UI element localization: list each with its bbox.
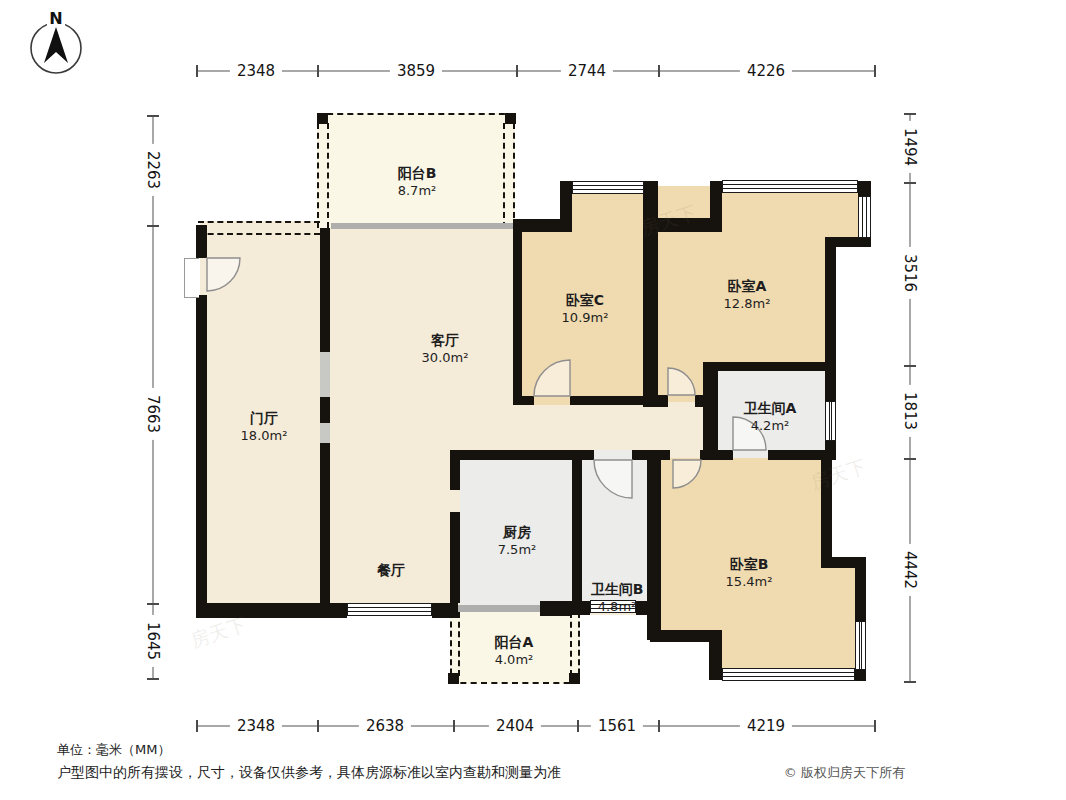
dim-value: 1645 bbox=[144, 615, 162, 667]
dim-tick bbox=[147, 678, 159, 680]
room-area: 18.0m² bbox=[241, 427, 288, 444]
bedroom-b-fill-left bbox=[655, 558, 722, 630]
wall bbox=[855, 568, 866, 622]
wall bbox=[709, 630, 722, 680]
dim-value: 2348 bbox=[230, 717, 282, 735]
room-area: 30.0m² bbox=[422, 349, 469, 366]
dimension-line-left: 2263 7663 1645 bbox=[152, 115, 154, 680]
wall bbox=[513, 396, 534, 405]
wall bbox=[320, 397, 330, 423]
dim-value: 1561 bbox=[591, 717, 643, 735]
wall bbox=[196, 225, 207, 258]
room-label-balcony-b: 阳台B 8.7m² bbox=[398, 165, 437, 199]
room-area: 4.2m² bbox=[751, 417, 790, 434]
room-name: 卧室B bbox=[730, 556, 769, 573]
room-name: 卫生间B bbox=[591, 581, 644, 598]
dim-value: 2404 bbox=[489, 717, 541, 735]
wall bbox=[703, 362, 718, 458]
window-bedroom-b-right bbox=[855, 621, 866, 670]
dim-tick bbox=[196, 720, 198, 732]
room-area: 4.8m² bbox=[598, 598, 637, 615]
wall bbox=[450, 458, 460, 490]
room-name: 卧室C bbox=[566, 292, 604, 309]
room-name: 阳台A bbox=[495, 634, 534, 651]
dim-value: 2638 bbox=[359, 717, 411, 735]
wall bbox=[196, 295, 207, 618]
dim-tick bbox=[516, 65, 518, 77]
wall bbox=[572, 458, 582, 603]
dim-value: 2263 bbox=[144, 144, 162, 196]
wall bbox=[700, 450, 733, 460]
dim-tick bbox=[904, 182, 916, 184]
room-label-bedroom-c: 卧室C 10.9m² bbox=[562, 292, 609, 326]
room-label-bathroom-b: 卫生间B 4.8m² bbox=[591, 581, 644, 615]
bedroom-b-fill-top bbox=[655, 458, 832, 558]
wall bbox=[858, 181, 871, 196]
dim-value: 2348 bbox=[230, 62, 282, 80]
wall bbox=[540, 601, 572, 616]
window-bedroom-c-top bbox=[572, 181, 644, 194]
window-bedroom-b-bottom bbox=[722, 668, 855, 681]
room-label-balcony-a: 阳台A 4.0m² bbox=[495, 634, 534, 668]
dim-value: 4226 bbox=[740, 62, 792, 80]
window-bedroom-a-bay bbox=[858, 196, 871, 238]
wall bbox=[450, 512, 460, 603]
dim-tick bbox=[904, 113, 916, 115]
wall bbox=[695, 395, 715, 407]
wall bbox=[645, 395, 668, 407]
dim-tick bbox=[874, 65, 876, 77]
room-area: 10.9m² bbox=[562, 309, 609, 326]
wall bbox=[505, 113, 516, 124]
wall bbox=[450, 450, 582, 460]
wall-opening-foyer-living-1 bbox=[320, 352, 330, 397]
floor-plan-page: { "compass": { "label": "N" }, "rooms": … bbox=[0, 0, 1066, 800]
room-area: 15.4m² bbox=[726, 573, 773, 590]
dim-tick bbox=[453, 720, 455, 732]
foyer-top-dashed-wall bbox=[198, 221, 320, 235]
sliding-door-kitchen-balcony-a bbox=[458, 605, 540, 612]
wall bbox=[560, 181, 572, 232]
dim-tick bbox=[904, 365, 916, 367]
window-dining-bottom bbox=[347, 603, 432, 616]
room-area: 8.7m² bbox=[398, 182, 437, 199]
dim-value: 4442 bbox=[901, 544, 919, 596]
room-area: 7.5m² bbox=[498, 541, 537, 558]
dim-value: 4219 bbox=[740, 717, 792, 735]
wall bbox=[643, 181, 658, 407]
dim-tick bbox=[147, 603, 159, 605]
room-label-foyer: 门厅 18.0m² bbox=[241, 410, 288, 444]
dim-tick bbox=[317, 65, 319, 77]
dim-tick bbox=[196, 65, 198, 77]
dim-value: 2744 bbox=[561, 62, 613, 80]
wall bbox=[569, 673, 580, 684]
wall bbox=[320, 443, 330, 603]
wall bbox=[821, 557, 866, 568]
wall bbox=[825, 247, 836, 402]
room-name: 门厅 bbox=[250, 410, 278, 427]
wall bbox=[570, 396, 645, 405]
room-area: 4.0m² bbox=[495, 651, 534, 668]
unit-note: 单位：毫米（MM） bbox=[57, 741, 170, 759]
entry-door-nook bbox=[184, 258, 199, 298]
wall bbox=[821, 458, 832, 557]
room-label-kitchen: 厨房 7.5m² bbox=[498, 524, 537, 558]
room-name: 厨房 bbox=[503, 524, 531, 541]
wall bbox=[432, 603, 458, 618]
wall bbox=[196, 603, 347, 618]
dim-tick bbox=[317, 720, 319, 732]
copyright: © 版权归房天下所有 bbox=[784, 764, 905, 782]
dim-value: 1813 bbox=[901, 385, 919, 437]
dim-value: 3516 bbox=[901, 247, 919, 299]
dim-tick bbox=[874, 720, 876, 732]
room-label-bedroom-a: 卧室A 12.8m² bbox=[724, 278, 771, 312]
window-bathroom-a bbox=[825, 401, 836, 441]
dim-tick bbox=[904, 458, 916, 460]
dim-tick bbox=[658, 65, 660, 77]
dim-tick bbox=[147, 115, 159, 117]
room-name: 阳台B bbox=[398, 165, 437, 182]
compass-north-label: N bbox=[49, 9, 62, 28]
dim-value: 3859 bbox=[390, 62, 442, 80]
wall bbox=[632, 450, 647, 460]
room-label-bedroom-b: 卧室B 15.4m² bbox=[726, 556, 773, 590]
north-arrow-icon bbox=[44, 27, 68, 63]
dimension-line-right: 1494 3516 1813 4442 bbox=[909, 113, 911, 683]
dim-tick bbox=[658, 720, 660, 732]
sliding-door-living-balcony-b bbox=[331, 223, 513, 229]
wall bbox=[572, 601, 590, 615]
room-label-bathroom-a: 卫生间A 4.2m² bbox=[744, 400, 797, 434]
room-area: 12.8m² bbox=[724, 295, 771, 312]
disclaimer: 户型图中的所有摆设，尺寸，设备仅供参考，具体房源标准以室内查勘和测量为准 bbox=[57, 764, 561, 782]
wall bbox=[825, 237, 871, 247]
dim-tick bbox=[147, 225, 159, 227]
room-label-living-room: 客厅 30.0m² bbox=[422, 332, 469, 366]
dim-value: 1494 bbox=[901, 121, 919, 173]
room-name: 卫生间A bbox=[744, 400, 797, 417]
dim-value: 7663 bbox=[144, 388, 162, 440]
room-name: 客厅 bbox=[431, 332, 459, 349]
wall bbox=[513, 228, 522, 405]
room-label-dining-room: 餐厅 bbox=[377, 562, 405, 579]
dim-tick bbox=[904, 681, 916, 683]
dimension-line-top: 2348 3859 2744 4226 bbox=[196, 70, 876, 72]
wall bbox=[582, 450, 594, 460]
dim-tick bbox=[577, 720, 579, 732]
watermark: 房天下 bbox=[187, 612, 249, 654]
room-name: 餐厅 bbox=[377, 562, 405, 579]
room-name: 卧室A bbox=[728, 278, 767, 295]
window-bedroom-a-top bbox=[722, 180, 858, 193]
wall-opening-foyer-living-2 bbox=[320, 423, 330, 443]
wall bbox=[320, 228, 330, 352]
wall bbox=[448, 673, 459, 684]
wall bbox=[703, 362, 836, 371]
wall bbox=[317, 113, 328, 124]
compass: N bbox=[22, 6, 94, 86]
wall bbox=[710, 181, 722, 232]
dimension-line-bottom: 2348 2638 2404 1561 4219 bbox=[196, 725, 876, 727]
